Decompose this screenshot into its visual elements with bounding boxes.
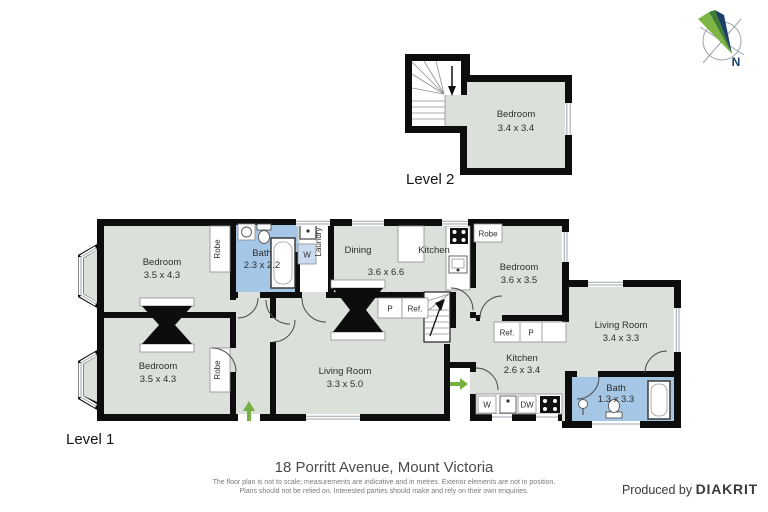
property-address: 18 Porritt Avenue, Mount Victoria — [0, 459, 768, 476]
fridge-label: Ref. — [408, 305, 423, 314]
level1-plan: Bedroom 3.5 x 4.3 Bath 2.3 x 2.2 Dining … — [66, 219, 681, 448]
level2-bedroom-name: Bedroom — [497, 109, 536, 120]
level2-label: Level 2 — [406, 171, 454, 188]
kitchen-top-name: Kitchen — [418, 245, 450, 256]
robe-bl-label: Robe — [213, 360, 222, 380]
basin2-icon — [579, 400, 588, 409]
level2-window — [565, 103, 572, 135]
side-porch — [450, 368, 470, 421]
robe-tl-label: Robe — [213, 239, 222, 259]
credit-brand: DIAKRIT — [696, 481, 758, 497]
level1-label: Level 1 — [66, 431, 114, 448]
robe-tr-label: Robe — [478, 230, 498, 239]
laundry-label: Laundry — [314, 228, 323, 257]
bedroom-bl-name: Bedroom — [139, 361, 178, 372]
stove-icon — [450, 228, 468, 244]
bath2-name: Bath — [606, 383, 626, 394]
fridge2-label: Ref. — [500, 329, 515, 338]
bath1-dims: 2.3 x 2.2 — [244, 260, 280, 271]
sink2-icon — [500, 396, 516, 413]
pantry2-label: P — [528, 329, 533, 338]
bedroom-tr-name: Bedroom — [500, 262, 539, 273]
level2-bedroom-dims: 3.4 x 3.4 — [498, 123, 534, 134]
floorplan-canvas: N Bedroom 3.4 x 3.4 — [0, 0, 768, 512]
bedroom-tl-name: Bedroom — [143, 257, 182, 268]
bedroom-tl-dims: 3.5 x 4.3 — [144, 270, 180, 281]
living-main-dims: 3.3 x 5.0 — [327, 379, 363, 390]
bath2-dims: 1.3 x 3.3 — [598, 394, 634, 405]
living-wing-name: Living Room — [595, 320, 648, 331]
basin-icon — [242, 227, 252, 237]
compass-icon: N — [698, 10, 744, 69]
dining-name: Dining — [345, 245, 372, 256]
washer-label: W — [303, 251, 311, 260]
bath1-name: Bath — [252, 248, 272, 259]
kitchen-br-name: Kitchen — [506, 353, 538, 364]
washer2-label: W — [483, 401, 491, 410]
stove2-icon — [540, 396, 560, 413]
dishwasher-label: DW — [520, 401, 534, 410]
pantry-label: P — [387, 305, 392, 314]
living-main-name: Living Room — [319, 366, 372, 377]
toilet-icon — [257, 224, 271, 230]
floorplan-page: N Bedroom 3.4 x 3.4 — [0, 0, 768, 512]
kitchen-island-bench — [398, 226, 424, 262]
dining-dims: 3.6 x 6.6 — [368, 267, 404, 278]
compass-north-label: N — [732, 55, 741, 69]
living-wing-dims: 3.4 x 3.3 — [603, 333, 639, 344]
kitchen-br-dims: 2.6 x 3.4 — [504, 365, 540, 376]
producer-credit: Produced by DIAKRIT — [622, 481, 758, 497]
bedroom-bl-dims: 3.5 x 4.3 — [140, 374, 176, 385]
level2-plan: Bedroom 3.4 x 3.4 Level 2 — [405, 54, 572, 188]
credit-prefix: Produced by — [622, 483, 692, 497]
bedroom-tr-dims: 3.6 x 3.5 — [501, 275, 537, 286]
